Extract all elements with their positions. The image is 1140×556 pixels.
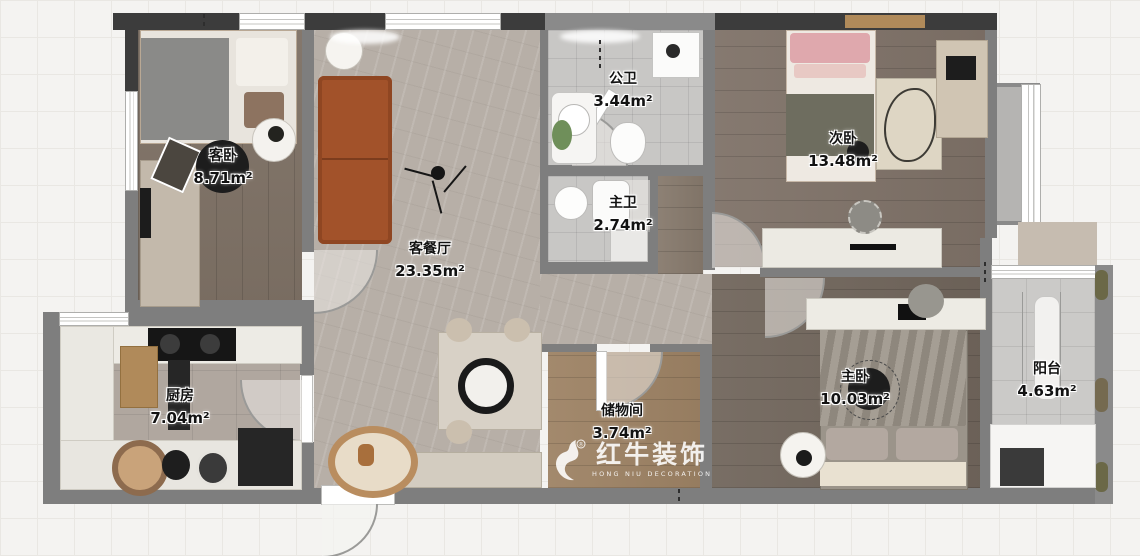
guest-tv [140,188,151,238]
wall-storage-top-b [650,344,712,352]
room-name: 客卧 [175,145,271,167]
kitchen-door [302,376,312,442]
bay-window-sill [997,85,1022,225]
room-area: 23.35m² [380,260,480,283]
window-guest-top [240,14,304,29]
watermark-subtitle: HONG NIU DECORATION [592,470,712,478]
room-name: 主卧 [805,366,905,388]
window-guest-left [126,92,137,190]
second-bedroom-monitor [850,244,896,250]
sofa-cushion-line [322,158,388,160]
room-label-guest-bedroom: 客卧 8.71m² [175,145,271,190]
opening-marker-balcony [984,262,986,284]
kitchen-kettle [196,450,230,486]
wall-bottom [43,488,1113,504]
svg-text:®: ® [578,442,584,449]
shoe-cabinet [400,452,542,488]
room-area: 4.63m² [999,380,1095,403]
window-balcony-top [992,266,1097,278]
railing-plant-2 [1095,378,1108,412]
wall-bath-left [540,30,548,274]
master-bed-pillow-2 [896,428,958,460]
curtain-strip [845,15,925,28]
room-name: 主卫 [575,192,671,214]
guest-side-table-plant [268,126,284,142]
railing-plant-1 [1095,270,1108,300]
room-label-public-bath: 公卫 3.44m² [575,68,671,113]
railing-plant-3 [1095,462,1108,492]
dining-chair-3 [446,420,472,444]
opening-marker-top [203,14,205,29]
bay-window [1022,85,1040,225]
guest-bed-pillow [236,38,288,86]
balcony-top-cabinet [1018,222,1097,266]
dining-chair-1 [446,318,472,342]
balcony-washer [1000,448,1044,486]
room-area: 10.03m² [805,388,905,411]
room-name: 客餐厅 [380,238,480,260]
room-area: 8.71m² [175,167,271,190]
wall-secondbed-bottom [760,267,990,277]
sofa [318,76,392,244]
wall-guest-right [302,30,314,252]
room-name: 阳台 [999,358,1095,380]
watermark: ® 红牛装饰 HONG NIU DECORATION [552,438,712,482]
second-bed-pillow [790,33,870,63]
guest-bed-blanket [141,38,229,140]
second-bedroom-shelf-book [946,56,976,80]
wall-kitchen-left [43,312,60,488]
ceiling-fan [431,166,445,180]
floor-plan: 客卧 8.71m² 客餐厅 23.35m² 公卫 3.44m² 主卫 2.74m… [0,0,1140,556]
room-name: 厨房 [132,385,228,407]
room-label-living-dining: 客餐厅 23.35m² [380,238,480,283]
master-bed-pillow-1 [826,428,888,460]
hongniu-bull-logo-icon: ® [552,438,586,482]
hanging-plant-1 [330,30,400,44]
public-bath-washer-door [666,44,680,58]
wall-kitchen-right-a [300,326,314,375]
second-bedroom-chair [848,200,882,234]
wall-guest-left-dark [125,13,138,92]
room-area: 2.74m² [575,214,671,237]
entry-shoes [358,444,374,466]
room-name: 储物间 [574,400,670,422]
bath-plant [552,120,572,150]
window-living-top [386,14,500,29]
watermark-text: 红牛装饰 HONG NIU DECORATION [592,442,712,478]
master-bed-base [820,462,966,486]
watermark-brand: 红牛装饰 [592,442,712,467]
dining-chair-2 [504,318,530,342]
hallway-floor [540,274,712,344]
room-area: 13.48m² [793,150,893,173]
master-desk [806,298,986,330]
wall-bath-divider [548,165,715,176]
room-label-second-bedroom: 次卧 13.48m² [793,128,893,173]
wall-top-mid [545,13,715,30]
dining-grill [458,358,514,414]
room-area: 7.04m² [132,407,228,430]
room-label-kitchen: 厨房 7.04m² [132,385,228,430]
wall-masterbath-bottom [540,262,658,274]
room-area: 3.44m² [575,90,671,113]
kitchen-burner-2 [200,334,220,354]
entrance-door-swing [322,504,378,556]
kitchen-pot [162,450,190,480]
kitchen-rug [112,440,168,496]
room-label-master-bedroom: 主卧 10.03m² [805,366,905,411]
window-kitchen [60,313,128,325]
second-bedroom-shelf [936,40,988,138]
public-bath-toilet [610,122,646,164]
master-fur-chair [908,284,944,318]
opening-marker-bottom [678,489,680,503]
wall-storage-top-a [540,344,597,352]
second-bed-pillow-2 [794,64,866,78]
room-name: 次卧 [793,128,893,150]
room-name: 公卫 [575,68,671,90]
kitchen-fridge [238,428,293,486]
wall-kitchen-right-b [300,442,314,488]
master-side-table-decor [796,450,812,466]
kitchen-burner-1 [160,334,180,354]
room-label-master-bath: 主卫 2.74m² [575,192,671,237]
room-label-balcony: 阳台 4.63m² [999,358,1095,403]
